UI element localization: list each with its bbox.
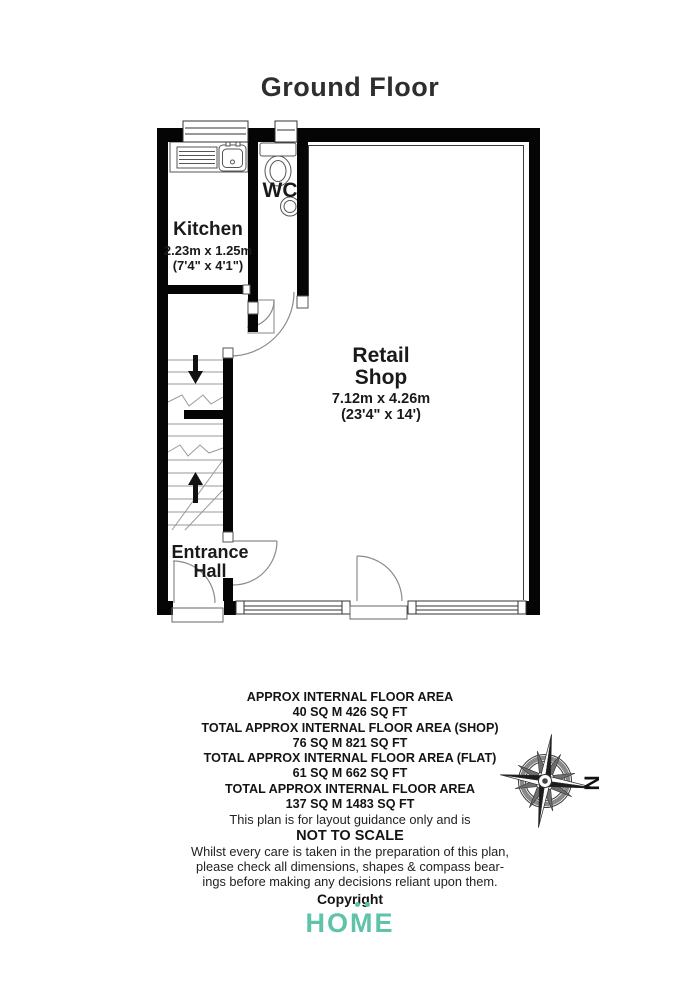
retail-shop-label: Retail Shop 7.12m x 4.26m (23'4" x 14') — [299, 345, 463, 423]
wall-wc-right — [297, 142, 308, 296]
wall-stair-landing — [184, 410, 233, 419]
hall-shop-door-arc — [230, 292, 294, 356]
wall-bottom — [157, 601, 173, 615]
shop-window-right — [408, 601, 526, 614]
area-line-1-label: APPROX INTERNAL FLOOR AREA — [0, 690, 700, 705]
sink-icon — [219, 141, 246, 171]
page-title: Ground Floor — [0, 72, 700, 103]
entrance-name-line1: Entrance — [158, 543, 262, 562]
door-jambs — [223, 285, 308, 542]
wall-left — [157, 128, 168, 615]
footer-text-block: APPROX INTERNAL FLOOR AREA 40 SQ M 426 S… — [0, 690, 700, 907]
not-to-scale-line: NOT TO SCALE — [0, 828, 700, 844]
entrance-name-line2: Hall — [158, 562, 262, 581]
wc-label: WC — [252, 179, 308, 203]
area-line-4-label: TOTAL APPROX INTERNAL FLOOR AREA — [0, 782, 700, 797]
brand-logo: HOME — [0, 901, 700, 937]
stairs-down-arrow-icon — [188, 355, 203, 384]
wall-top — [157, 128, 183, 142]
entrance-hall-label: Entrance Hall — [158, 543, 262, 580]
area-line-2-value: 76 SQ M 821 SQ FT — [0, 736, 700, 751]
disclaimer-line-3: ings before making any decisions reliant… — [0, 874, 700, 889]
kitchen-name: Kitchen — [148, 220, 268, 239]
draining-board-icon — [177, 147, 217, 168]
area-line-4-value: 137 SQ M 1483 SQ FT — [0, 797, 700, 812]
guidance-line: This plan is for layout guidance only an… — [0, 812, 700, 827]
wall-kitchen-bottom — [168, 285, 243, 294]
disclaimer-line-2: please check all dimensions, shapes & co… — [0, 859, 700, 874]
retail-dims-metric: 7.12m x 4.26m — [299, 391, 463, 407]
disclaimer-line-1: Whilst every care is taken in the prepar… — [0, 844, 700, 859]
area-line-3-value: 61 SQ M 662 SQ FT — [0, 766, 700, 781]
shop-window-left — [236, 601, 350, 614]
retail-dims-imperial: (23'4" x 14') — [299, 407, 463, 423]
floorplan-page: Ground Floor Kitchen 2.23m x 1.25m (7'4"… — [0, 0, 700, 990]
wall-right — [529, 128, 540, 615]
entrance-threshold — [172, 608, 223, 622]
area-line-1-value: 40 SQ M 426 SQ FT — [0, 705, 700, 720]
kitchen-window — [183, 121, 248, 142]
staircase — [168, 360, 223, 530]
retail-name-line2: Shop — [299, 367, 463, 389]
stairs-up-arrow-icon — [188, 472, 203, 503]
wc-window — [275, 121, 297, 142]
logo-dot-icon — [355, 902, 360, 907]
shop-door-threshold — [350, 606, 407, 619]
kitchen-label: Kitchen 2.23m x 1.25m (7'4" x 4'1") — [148, 220, 268, 273]
kitchen-dims-metric: 2.23m x 1.25m — [148, 243, 268, 258]
brand-logo-text: HOME — [306, 910, 395, 937]
area-line-2-label: TOTAL APPROX INTERNAL FLOOR AREA (SHOP) — [0, 721, 700, 736]
logo-dot-icon — [365, 902, 370, 907]
area-line-3-label: TOTAL APPROX INTERNAL FLOOR AREA (FLAT) — [0, 751, 700, 766]
retail-name-line1: Retail — [299, 345, 463, 367]
kitchen-fixtures — [170, 141, 248, 172]
wall-stair-right — [223, 358, 233, 532]
shop-door-arc — [357, 556, 402, 601]
kitchen-dims-imperial: (7'4" x 4'1") — [148, 258, 268, 273]
